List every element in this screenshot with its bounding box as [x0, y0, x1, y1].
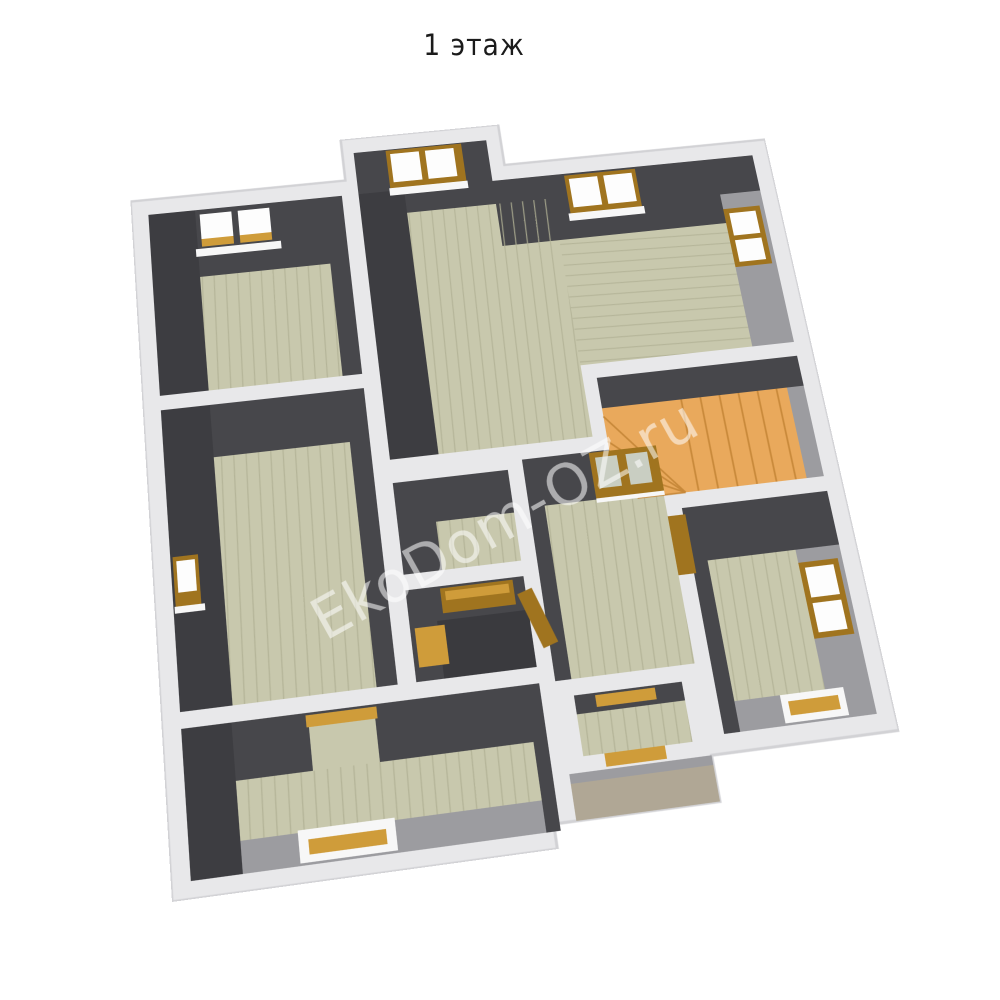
doorway-bottomleft-room [309, 719, 380, 771]
page-title: 1 этаж [423, 28, 525, 62]
double-glass-door [589, 445, 665, 502]
floor-plan-3d [128, 100, 915, 902]
floor-plan-svg [128, 100, 915, 902]
window-topright [562, 169, 645, 221]
bathroom-cabinet [415, 625, 450, 668]
floor-plan-page: 1 этаж [0, 0, 1000, 1000]
bathroom-floor [437, 610, 537, 679]
window-bumpout [384, 143, 468, 195]
